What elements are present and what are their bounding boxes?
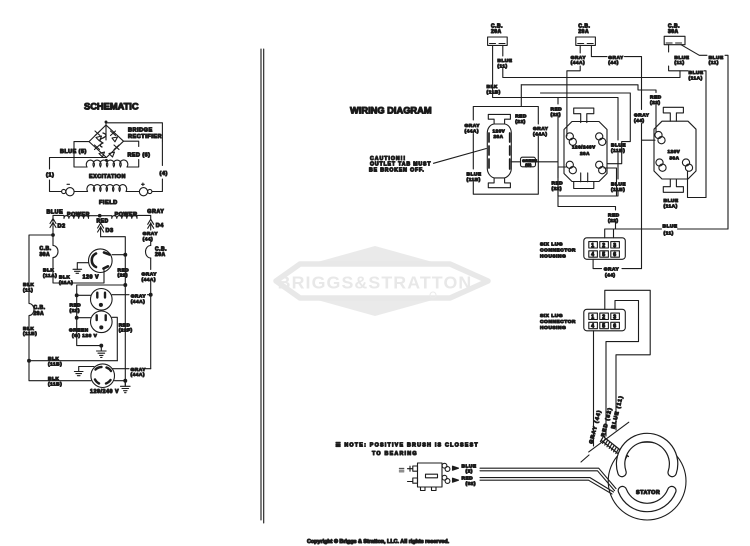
svg-text:GRAY: GRAY [143, 231, 159, 237]
svg-text:RED: RED [462, 476, 474, 482]
svg-text:BLUE: BLUE [663, 224, 678, 230]
svg-text:20A: 20A [578, 29, 589, 35]
svg-text:(11A): (11A) [59, 280, 73, 286]
svg-text:GRAY: GRAY [634, 113, 650, 119]
svg-text:RED: RED [552, 181, 564, 187]
svg-text:6: 6 [613, 252, 616, 258]
svg-text:5: 5 [602, 324, 605, 330]
svg-text:(11A): (11A) [664, 203, 678, 209]
svg-text:1: 1 [591, 243, 594, 249]
svg-text:20A: 20A [494, 134, 504, 139]
svg-text:(22): (22) [118, 273, 129, 279]
svg-text:BLK: BLK [48, 356, 59, 362]
svg-text:4: 4 [591, 324, 594, 330]
svg-text:1: 1 [591, 314, 594, 320]
svg-text:RED (6): RED (6) [128, 152, 151, 158]
svg-text:120V: 120V [668, 149, 681, 154]
svg-text:(44): (44) [605, 273, 616, 279]
svg-text:RED: RED [119, 322, 131, 328]
svg-text:BLUE: BLUE [664, 198, 679, 204]
svg-text:☰ NOTE: POSITIVE BRUSH IS CLOS: ☰ NOTE: POSITIVE BRUSH IS CLOSEST [336, 442, 479, 448]
svg-text:6: 6 [613, 324, 616, 330]
svg-text:(22F): (22F) [119, 328, 133, 334]
svg-text:(44A): (44A) [465, 128, 480, 134]
svg-text:SIX LUG: SIX LUG [540, 242, 563, 248]
svg-text:(22): (22) [551, 112, 562, 118]
svg-text:(11B): (11B) [487, 89, 501, 95]
svg-text:GRAY (44): GRAY (44) [589, 409, 603, 444]
svg-text:TO BEARING: TO BEARING [372, 451, 418, 457]
svg-text:(44A): (44A) [131, 372, 146, 378]
svg-text:GRAY: GRAY [131, 294, 147, 300]
svg-text:BRIDGE: BRIDGE [128, 128, 153, 134]
svg-text:4: 4 [591, 252, 594, 258]
svg-text:(22): (22) [650, 100, 661, 106]
svg-text:BLUE: BLUE [467, 172, 482, 178]
svg-text:(22): (22) [552, 186, 563, 192]
svg-text:(11B): (11B) [48, 361, 62, 367]
svg-text:(G): (G) [525, 162, 532, 167]
svg-text:BLK: BLK [23, 282, 34, 288]
svg-text:BLK: BLK [43, 268, 54, 274]
svg-text:FIELD: FIELD [99, 200, 118, 206]
svg-text:(22): (22) [70, 308, 81, 314]
svg-text:D3: D3 [106, 228, 114, 234]
svg-text:BLUE: BLUE [689, 70, 704, 76]
svg-text:GRAY: GRAY [608, 55, 624, 61]
svg-text:RED: RED [608, 213, 620, 219]
svg-text:BLUE: BLUE [47, 210, 64, 216]
svg-text:SCHEMATIC: SCHEMATIC [84, 102, 139, 112]
svg-text:D2: D2 [58, 223, 66, 229]
svg-text:(44A): (44A) [131, 299, 146, 305]
svg-text:(G) 120 V: (G) 120 V [72, 333, 98, 339]
svg-text:BLK: BLK [487, 84, 498, 90]
svg-text:20A: 20A [580, 151, 590, 156]
svg-text:RED: RED [551, 107, 563, 113]
svg-text:(11): (11) [497, 63, 507, 69]
svg-text:HOUSING: HOUSING [540, 254, 566, 260]
svg-text:RED: RED [650, 95, 662, 101]
svg-text:CONNECTOR: CONNECTOR [540, 319, 576, 325]
svg-text:SIX LUG: SIX LUG [540, 313, 563, 319]
svg-text:(11B): (11B) [611, 187, 625, 193]
svg-text:BLUE (5): BLUE (5) [60, 149, 87, 155]
svg-text:120/240 V: 120/240 V [90, 389, 119, 395]
svg-text:CONNECTOR: CONNECTOR [540, 248, 576, 254]
svg-text:(44): (44) [143, 237, 154, 243]
svg-text:GRAY: GRAY [571, 55, 587, 61]
svg-text:(4): (4) [160, 171, 168, 177]
svg-text:2: 2 [602, 243, 605, 249]
svg-text:(11B): (11B) [467, 177, 481, 183]
svg-text:2: 2 [602, 314, 605, 320]
svg-text:(22): (22) [608, 218, 619, 224]
svg-text:BLUE: BLUE [674, 55, 689, 61]
svg-text:(11A): (11A) [689, 75, 703, 81]
svg-text:STATOR: STATOR [636, 490, 660, 496]
svg-text:(11A): (11A) [43, 273, 57, 279]
svg-text:BLUE: BLUE [462, 463, 477, 469]
svg-text:WIRING DIAGRAM: WIRING DIAGRAM [350, 106, 432, 116]
svg-text:EXCITATION: EXCITATION [89, 174, 126, 180]
svg-text:3: 3 [613, 314, 616, 320]
svg-text:GRAY: GRAY [131, 367, 147, 373]
svg-text:Copyright © Briggs & Stratton,: Copyright © Briggs & Stratton, LLC. All … [307, 538, 450, 545]
svg-text:3: 3 [613, 243, 616, 249]
svg-text:RED: RED [70, 303, 82, 309]
svg-text:120/240V: 120/240V [572, 145, 596, 150]
svg-text:BLUE: BLUE [497, 58, 512, 64]
svg-text:(82): (82) [466, 481, 477, 487]
svg-text:120 V: 120 V [83, 275, 100, 281]
svg-text:BLK: BLK [48, 376, 59, 382]
svg-text:(44A): (44A) [533, 131, 548, 137]
svg-text:120V: 120V [493, 129, 506, 134]
svg-text:BRIGGS&STRATTON: BRIGGS&STRATTON [278, 273, 473, 293]
svg-text:D4: D4 [156, 223, 165, 229]
svg-text:GRAY: GRAY [604, 267, 620, 273]
svg-text:GRAY: GRAY [465, 123, 481, 129]
svg-text:30A: 30A [668, 29, 679, 35]
svg-text:BLUE: BLUE [709, 55, 724, 61]
svg-text:GRAY: GRAY [142, 272, 158, 278]
svg-text:HOUSING: HOUSING [540, 325, 566, 331]
svg-text:(44): (44) [608, 60, 619, 66]
svg-text:(11): (11) [674, 60, 684, 66]
svg-text:20A: 20A [155, 252, 166, 258]
svg-text:30A: 30A [670, 156, 680, 161]
svg-text:20A: 20A [34, 311, 45, 317]
svg-text:BLUE: BLUE [611, 143, 626, 149]
svg-text:(44A): (44A) [571, 60, 586, 66]
svg-text:BE BROKEN OFF.: BE BROKEN OFF. [369, 167, 425, 173]
svg-text:(44): (44) [634, 118, 645, 124]
svg-text:(44A): (44A) [142, 277, 157, 283]
svg-text:20A: 20A [491, 29, 502, 35]
svg-text:GREEN: GREEN [69, 328, 89, 334]
svg-text:BLK: BLK [23, 326, 34, 332]
svg-text:GRAY: GRAY [147, 209, 164, 215]
svg-text:5: 5 [602, 252, 605, 258]
svg-text:(2): (2) [466, 469, 473, 475]
svg-text:(11B): (11B) [23, 331, 37, 337]
svg-text:(11): (11) [23, 287, 33, 293]
svg-text:BLUE: BLUE [611, 182, 626, 188]
svg-text:GRAY: GRAY [533, 126, 549, 132]
svg-text:(11): (11) [709, 60, 719, 66]
svg-text:RED: RED [97, 219, 109, 225]
svg-text:(11B): (11B) [611, 148, 625, 154]
svg-text:30A: 30A [40, 252, 51, 258]
svg-text:(22): (22) [515, 119, 526, 125]
svg-text:RED: RED [515, 114, 527, 120]
svg-text:RED: RED [118, 267, 130, 273]
svg-text:(11): (11) [664, 230, 674, 236]
svg-text:(11B): (11B) [48, 381, 62, 387]
svg-text:RECTIFIER: RECTIFIER [128, 134, 162, 140]
svg-text:BLK: BLK [59, 275, 70, 281]
svg-text:(1): (1) [46, 173, 54, 179]
